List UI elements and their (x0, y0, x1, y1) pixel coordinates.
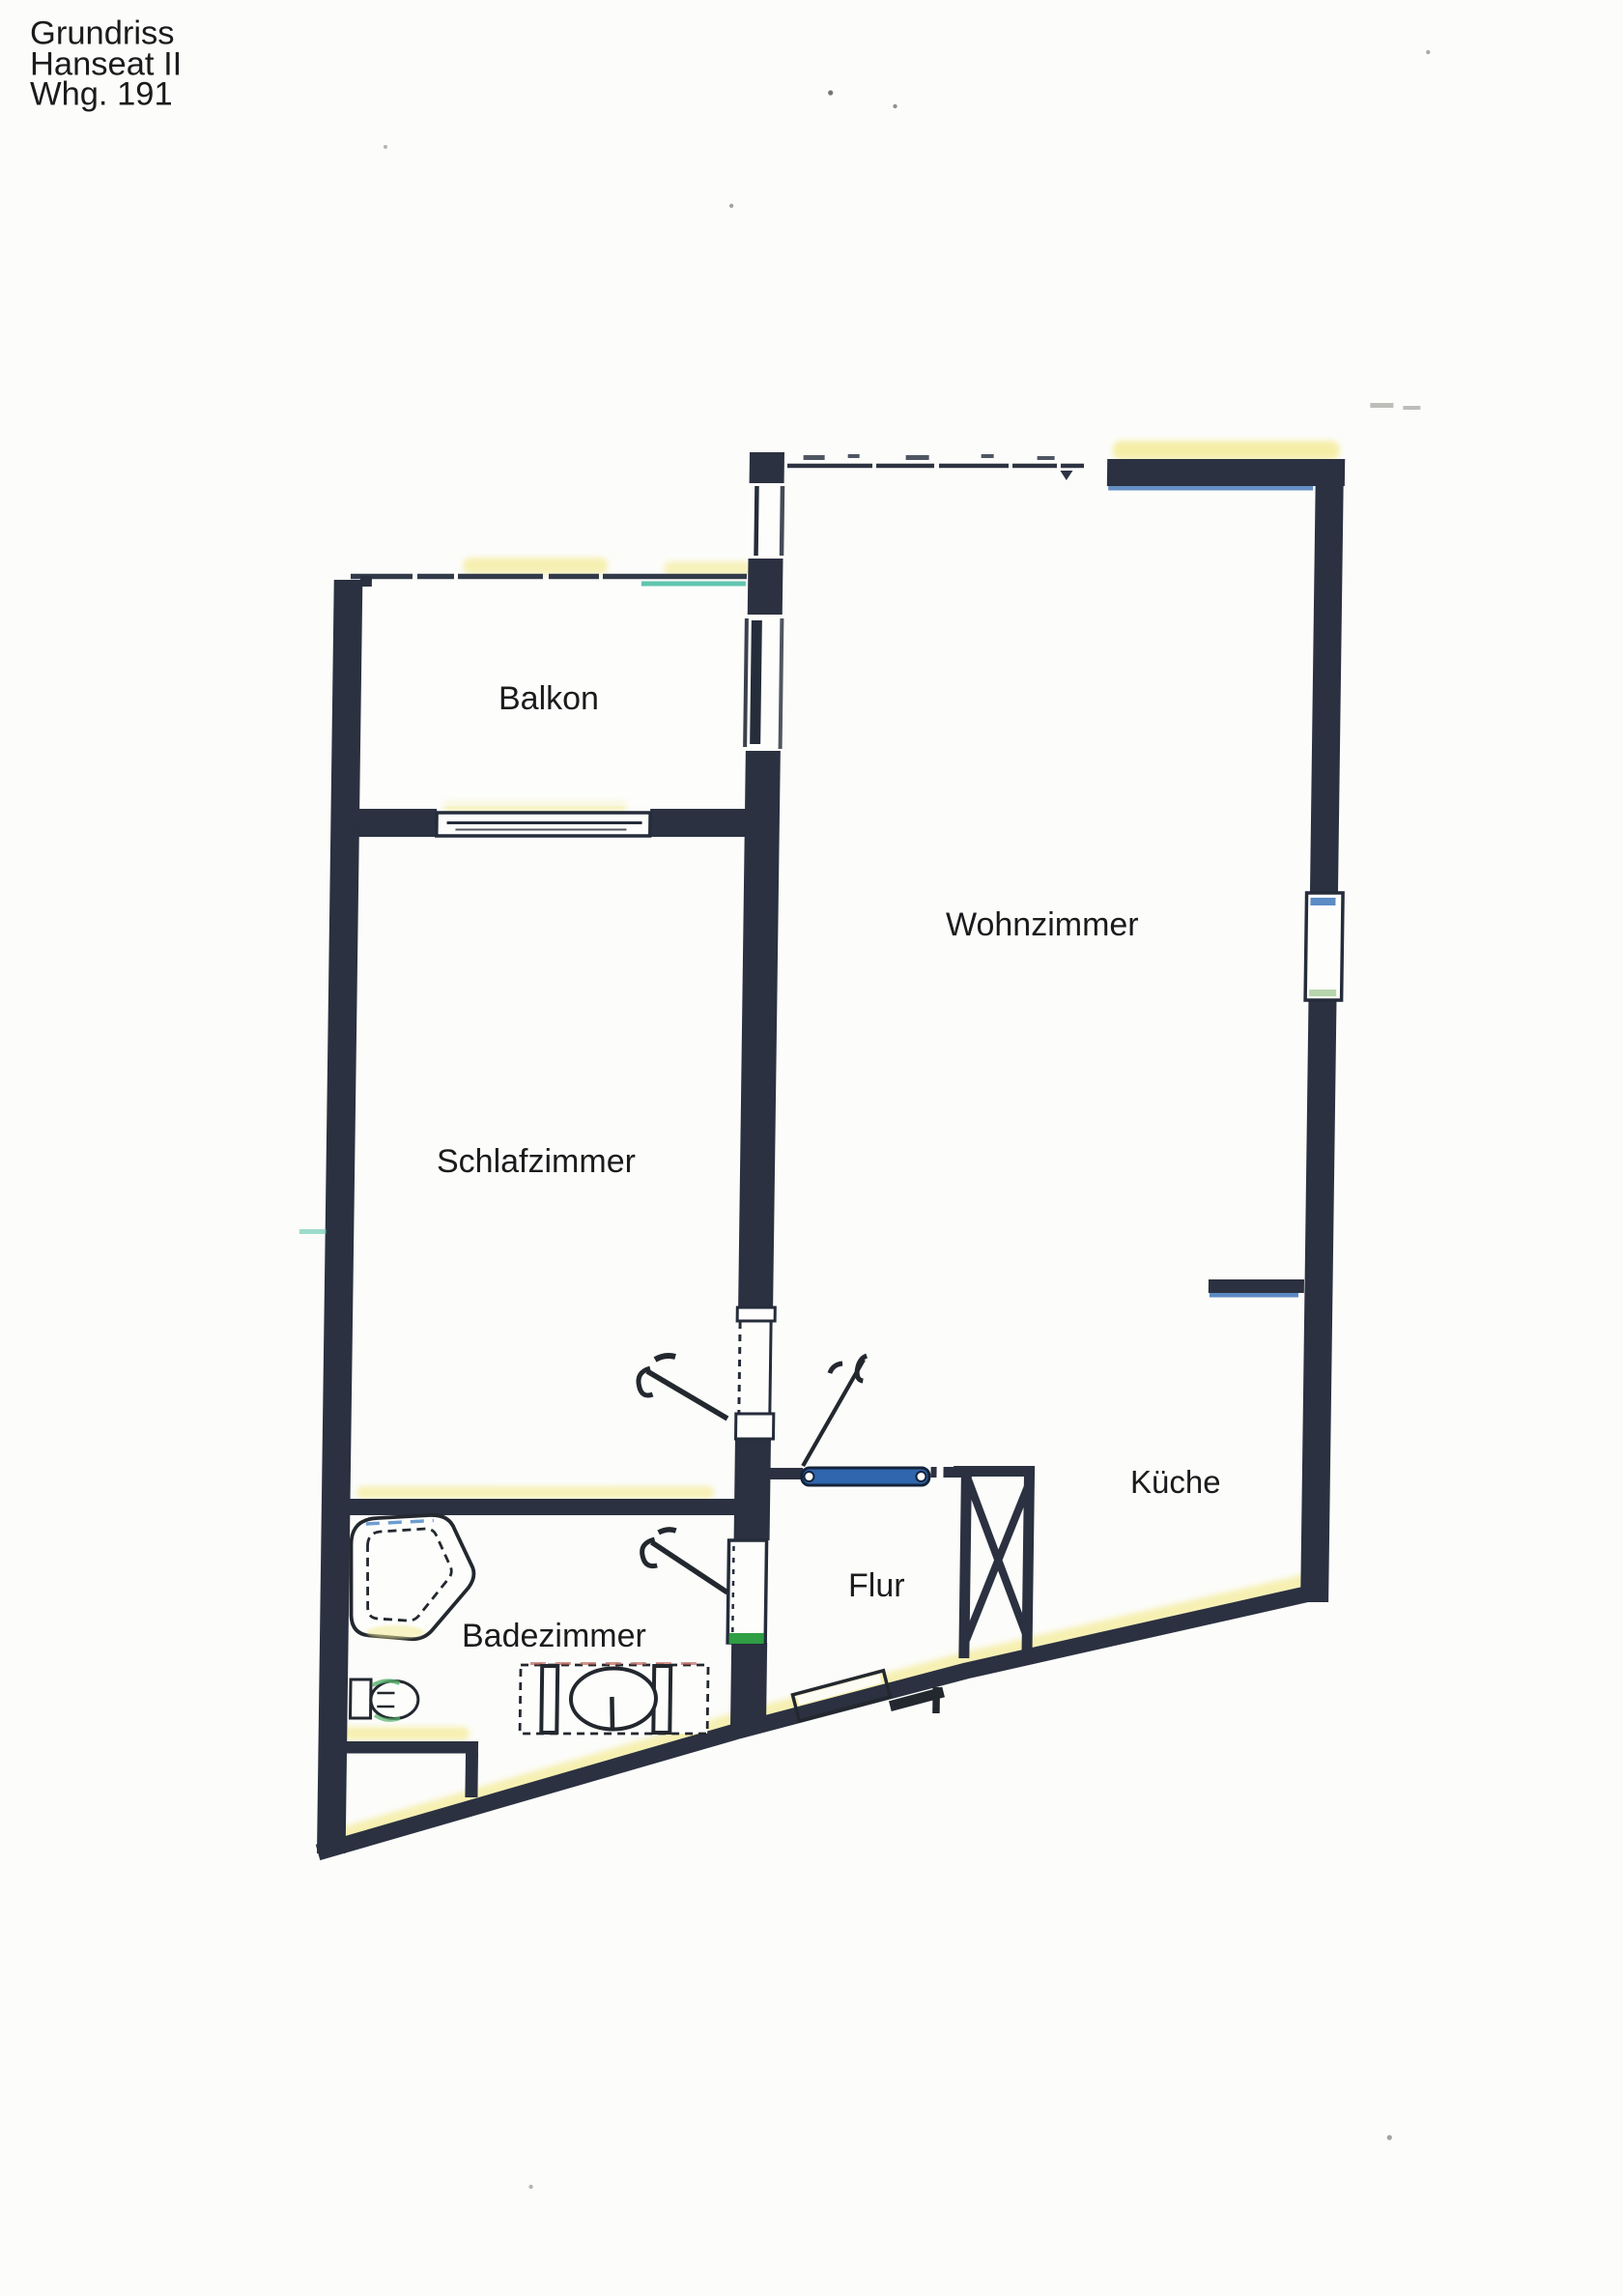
svg-text:Wohnzimmer: Wohnzimmer (946, 906, 1139, 943)
svg-text:Whg. 191: Whg. 191 (30, 76, 173, 113)
svg-text:Flur: Flur (848, 1567, 905, 1604)
svg-text:Küche: Küche (1130, 1464, 1221, 1500)
svg-text:Balkon: Balkon (498, 680, 599, 717)
svg-text:Badezimmer: Badezimmer (462, 1618, 646, 1654)
svg-text:Schlafzimmer: Schlafzimmer (437, 1143, 636, 1180)
